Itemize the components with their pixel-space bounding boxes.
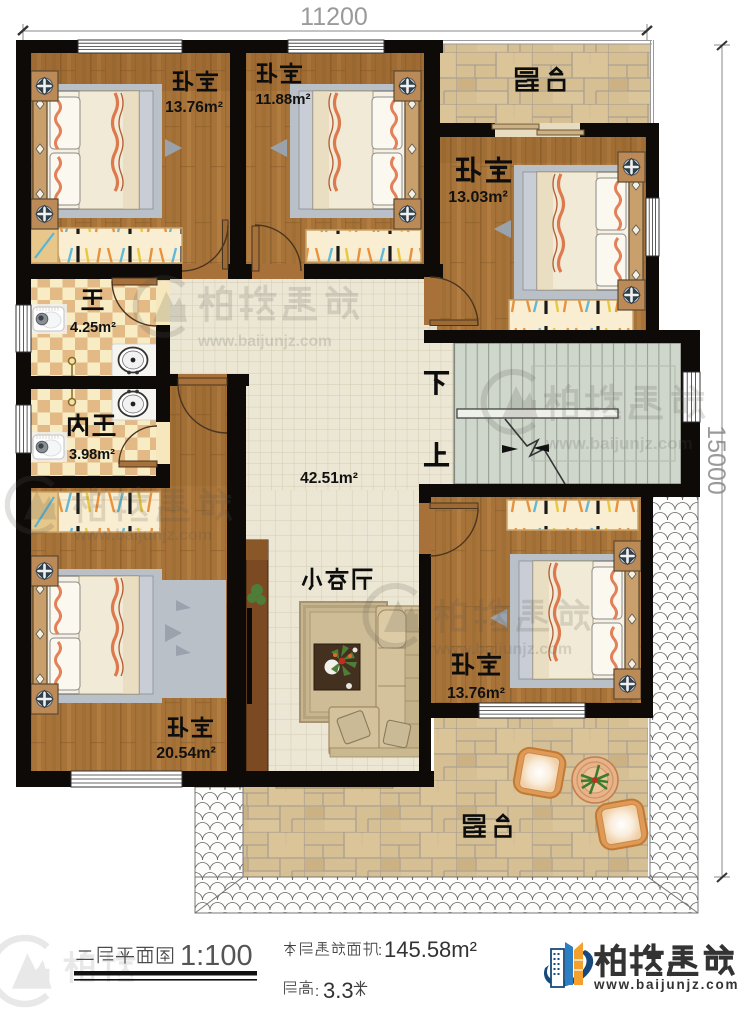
svg-text:11.88m²: 11.88m² xyxy=(255,91,310,108)
svg-text:15000: 15000 xyxy=(702,425,730,495)
svg-text:13.76m²: 13.76m² xyxy=(447,685,505,702)
svg-text:3.98m²: 3.98m² xyxy=(69,447,115,463)
svg-text:11200: 11200 xyxy=(300,3,368,31)
svg-text:13.76m²: 13.76m² xyxy=(165,99,223,116)
svg-text:145.58m²: 145.58m² xyxy=(384,937,477,962)
svg-text:42.51m²: 42.51m² xyxy=(300,470,358,487)
svg-text:13.03m²: 13.03m² xyxy=(448,189,508,206)
svg-text:4.25m²: 4.25m² xyxy=(70,320,116,336)
svg-text:www.baijunjz.com: www.baijunjz.com xyxy=(545,434,693,453)
svg-text::: : xyxy=(378,942,382,959)
svg-text:3.3: 3.3 xyxy=(323,978,354,1003)
svg-text:www.baijunjz.com: www.baijunjz.com xyxy=(73,527,212,544)
svg-text::: : xyxy=(315,983,319,1000)
svg-text:www.baijunjz.com: www.baijunjz.com xyxy=(197,333,332,350)
svg-text:1:100: 1:100 xyxy=(180,940,253,972)
svg-text:www.baijunjz.com: www.baijunjz.com xyxy=(593,977,739,992)
svg-text:20.54m²: 20.54m² xyxy=(156,745,216,762)
